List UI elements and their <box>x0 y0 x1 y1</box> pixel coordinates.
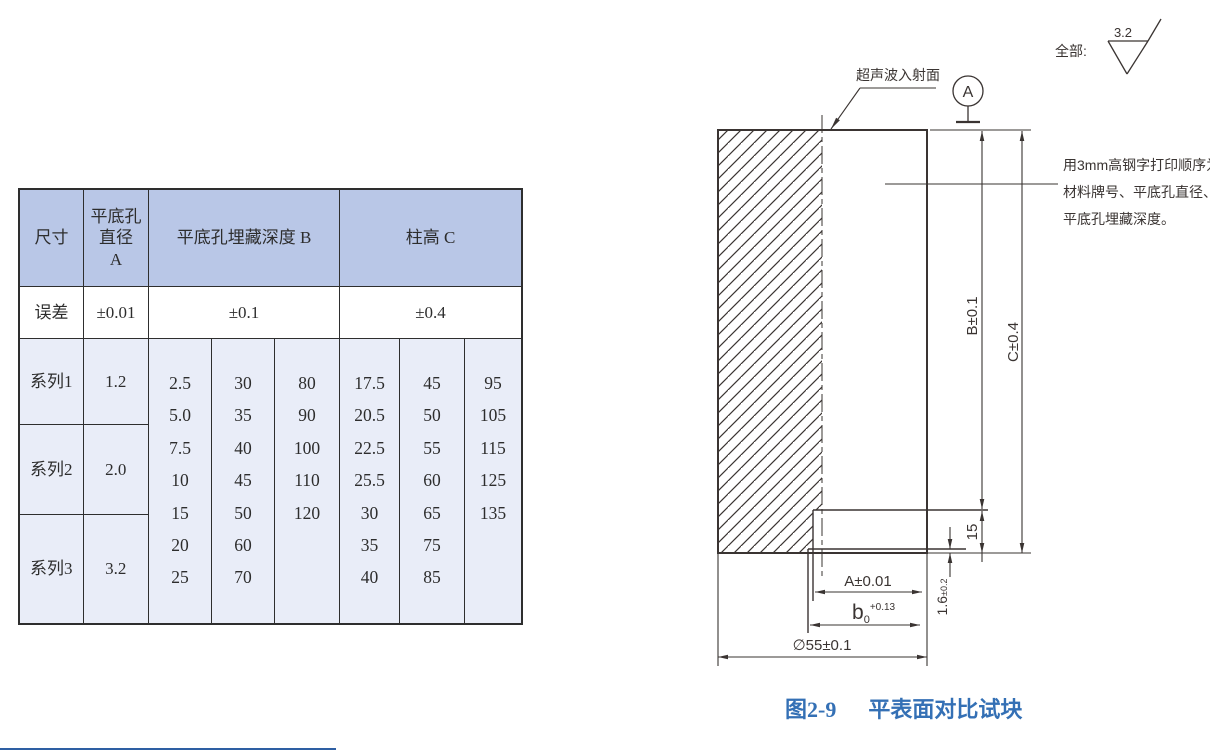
datum-symbol: A <box>953 76 983 122</box>
figure-caption: 图2-9平表面对比试块 <box>785 692 1022 724</box>
figure-number: 图2-9 <box>785 697 836 722</box>
technical-drawing: 超声波入射面 A 全部: 3.2 用3mm高钢字打印顺序为: 材料牌号、平底孔直… <box>0 0 1210 750</box>
roughness-value: 3.2 <box>1114 25 1132 40</box>
dim-outer-diameter: ∅55±0.1 <box>793 637 852 654</box>
document-page: 尺寸 平底孔 直径 A 平底孔埋藏深度 B 柱高 C 误差 ±0.01 ±0.1… <box>0 0 1210 750</box>
dim-depth-b: B±0.1 <box>964 296 981 335</box>
print-note: 用3mm高钢字打印顺序为: 材料牌号、平底孔直径、 平底孔埋藏深度。 <box>885 157 1210 227</box>
hole-lines <box>808 510 988 633</box>
dimension-texts: A±0.01 b0+0.13 ∅55±0.1 B±0.1 C±0.4 15 1.… <box>793 296 1022 654</box>
roughness-scope-label: 全部: <box>1055 43 1087 59</box>
dim-hole-diameter: A±0.01 <box>844 573 891 590</box>
print-note-line3: 平底孔埋藏深度。 <box>1063 211 1175 227</box>
surface-roughness: 全部: 3.2 <box>1055 19 1161 74</box>
incident-surface-leader: 超声波入射面 <box>831 67 940 129</box>
incident-surface-label: 超声波入射面 <box>856 67 940 83</box>
dim-counterbore: b0+0.13 <box>852 601 896 626</box>
dim-height-c: C±0.4 <box>1005 322 1022 362</box>
dim-membrane: 1.6±0.2 <box>934 579 950 616</box>
section-hatching <box>718 130 822 553</box>
dim-bore-depth: 15 <box>964 524 981 541</box>
figure-title: 平表面对比试块 <box>868 697 1022 722</box>
datum-letter: A <box>963 84 974 101</box>
print-note-line2: 材料牌号、平底孔直径、 <box>1063 184 1210 200</box>
print-note-line1: 用3mm高钢字打印顺序为: <box>1063 157 1210 173</box>
